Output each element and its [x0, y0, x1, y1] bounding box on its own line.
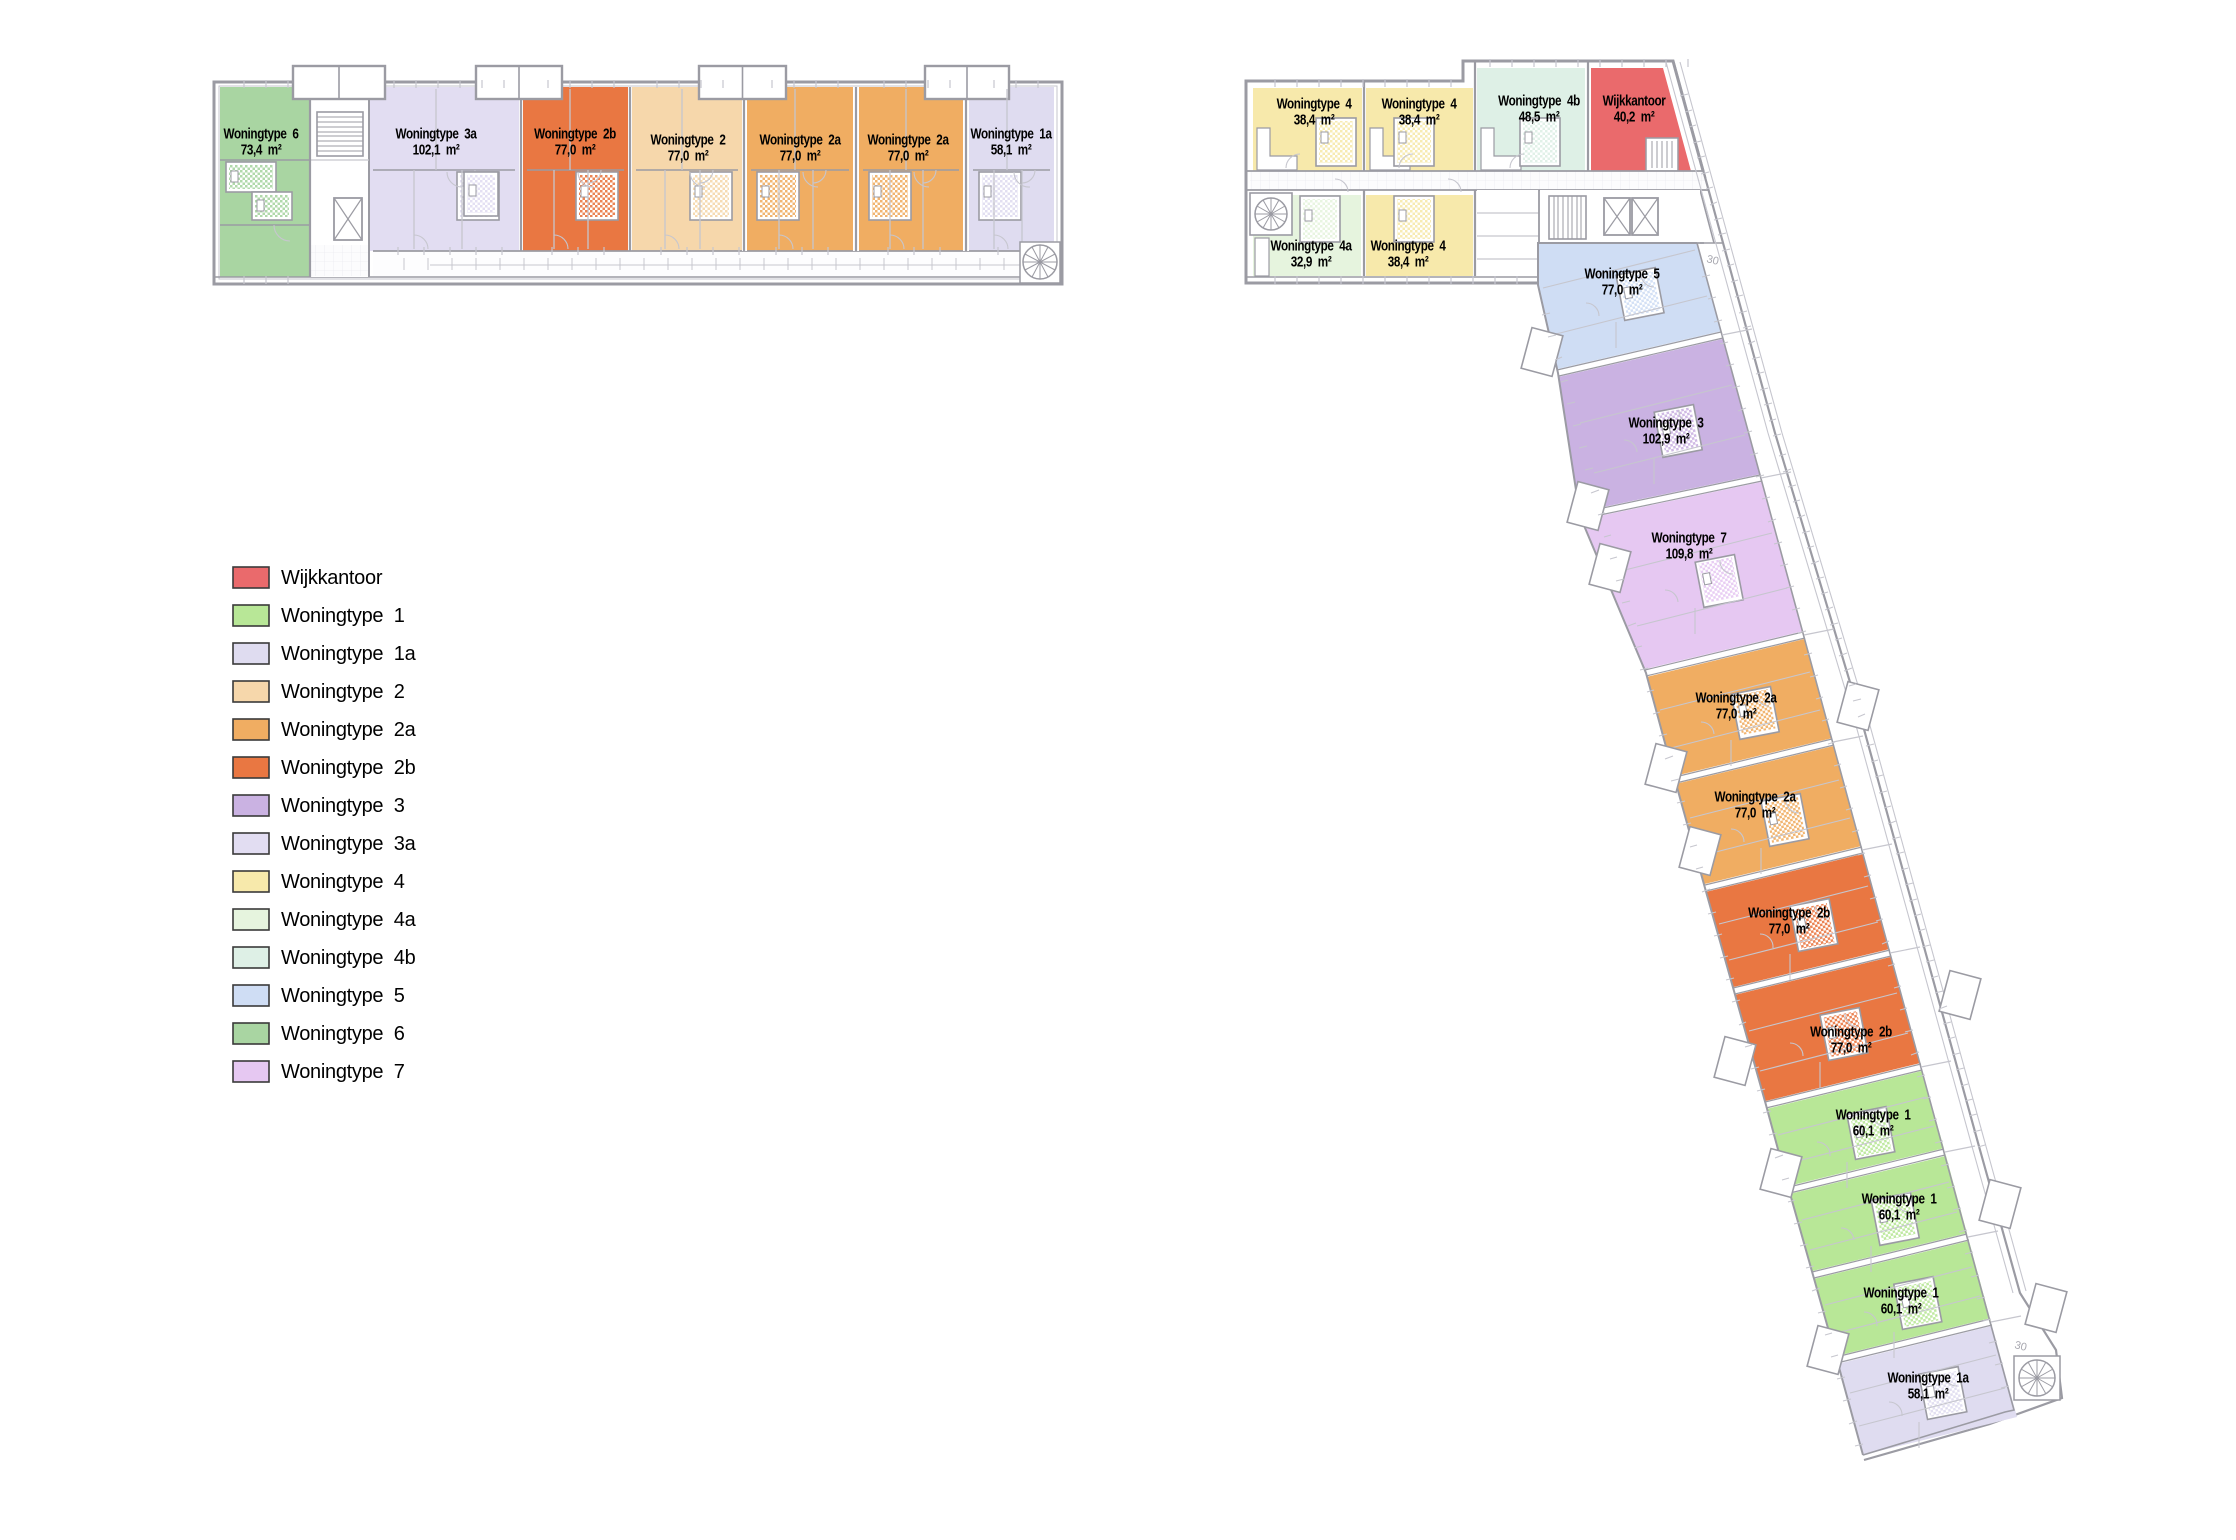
- svg-text:102,9 m²: 102,9 m²: [1643, 430, 1691, 447]
- svg-text:32,9 m²: 32,9 m²: [1291, 253, 1332, 270]
- svg-text:Woningtype 2a: Woningtype 2a: [1714, 788, 1796, 805]
- svg-text:Woningtype 2a: Woningtype 2a: [281, 719, 417, 741]
- svg-text:Woningtype 7: Woningtype 7: [281, 1061, 405, 1083]
- svg-text:Woningtype 4a: Woningtype 4a: [1270, 237, 1352, 254]
- svg-text:Woningtype 4: Woningtype 4: [281, 871, 405, 893]
- svg-text:77,0 m²: 77,0 m²: [555, 141, 596, 158]
- svg-text:77,0 m²: 77,0 m²: [888, 147, 929, 164]
- svg-text:Woningtype 2: Woningtype 2: [281, 681, 405, 703]
- svg-text:Woningtype 2b: Woningtype 2b: [1748, 904, 1830, 921]
- svg-text:77,0 m²: 77,0 m²: [780, 147, 821, 164]
- svg-text:48,5 m²: 48,5 m²: [1519, 108, 1560, 125]
- svg-text:38,4 m²: 38,4 m²: [1294, 111, 1335, 128]
- svg-text:77,0 m²: 77,0 m²: [1602, 281, 1643, 298]
- svg-text:38,4 m²: 38,4 m²: [1388, 253, 1429, 270]
- svg-text:Woningtype 2b: Woningtype 2b: [1810, 1023, 1892, 1040]
- svg-text:Woningtype 2a: Woningtype 2a: [759, 131, 841, 148]
- svg-text:Woningtype 4b: Woningtype 4b: [1498, 92, 1580, 109]
- svg-text:102,1 m²: 102,1 m²: [413, 141, 461, 158]
- svg-text:77,0 m²: 77,0 m²: [1735, 804, 1776, 821]
- svg-text:77,0 m²: 77,0 m²: [1831, 1039, 1872, 1056]
- svg-text:Woningtype 4: Woningtype 4: [1382, 95, 1458, 112]
- svg-text:58,1 m²: 58,1 m²: [991, 141, 1032, 158]
- svg-text:Woningtype 1: Woningtype 1: [1836, 1106, 1912, 1123]
- svg-text:Wijkkantoor: Wijkkantoor: [281, 567, 383, 589]
- svg-text:38,4 m²: 38,4 m²: [1399, 111, 1440, 128]
- svg-text:60,1 m²: 60,1 m²: [1853, 1122, 1894, 1139]
- svg-text:109,8 m²: 109,8 m²: [1666, 545, 1714, 562]
- svg-text:Woningtype 2a: Woningtype 2a: [867, 131, 949, 148]
- svg-text:Woningtype 7: Woningtype 7: [1652, 529, 1727, 546]
- svg-text:Woningtype 3a: Woningtype 3a: [281, 833, 417, 855]
- svg-text:77,0 m²: 77,0 m²: [1769, 920, 1810, 937]
- svg-text:Wijkkantoor: Wijkkantoor: [1603, 92, 1667, 109]
- svg-text:Woningtype 4: Woningtype 4: [1277, 95, 1353, 112]
- svg-text:Woningtype 2b: Woningtype 2b: [281, 757, 416, 779]
- svg-text:Woningtype 6: Woningtype 6: [224, 125, 299, 142]
- svg-text:Woningtype 3a: Woningtype 3a: [395, 125, 477, 142]
- svg-text:Woningtype 3: Woningtype 3: [281, 795, 405, 817]
- svg-text:73,4 m²: 73,4 m²: [241, 141, 282, 158]
- svg-text:Woningtype 1: Woningtype 1: [1864, 1284, 1940, 1301]
- svg-text:Woningtype 4: Woningtype 4: [1371, 237, 1447, 254]
- svg-text:Woningtype 3: Woningtype 3: [1629, 414, 1704, 431]
- svg-text:Woningtype 1a: Woningtype 1a: [970, 125, 1052, 142]
- svg-text:Woningtype 2: Woningtype 2: [651, 131, 726, 148]
- svg-text:77,0 m²: 77,0 m²: [1716, 705, 1757, 722]
- svg-text:Woningtype 5: Woningtype 5: [281, 985, 405, 1007]
- svg-text:Woningtype 2a: Woningtype 2a: [1695, 689, 1777, 706]
- svg-text:Woningtype 1a: Woningtype 1a: [1887, 1369, 1969, 1386]
- svg-text:Woningtype 1a: Woningtype 1a: [281, 643, 417, 665]
- svg-text:Woningtype 1: Woningtype 1: [281, 605, 405, 627]
- svg-text:Woningtype 4a: Woningtype 4a: [281, 909, 417, 931]
- svg-text:60,1 m²: 60,1 m²: [1879, 1206, 1920, 1223]
- svg-text:Woningtype 1: Woningtype 1: [1862, 1190, 1938, 1207]
- svg-text:77,0 m²: 77,0 m²: [668, 147, 709, 164]
- svg-text:40,2 m²: 40,2 m²: [1614, 108, 1655, 125]
- svg-text:Woningtype 6: Woningtype 6: [281, 1023, 405, 1045]
- svg-text:58,1 m²: 58,1 m²: [1908, 1385, 1949, 1402]
- svg-text:60,1 m²: 60,1 m²: [1881, 1300, 1922, 1317]
- svg-text:Woningtype 2b: Woningtype 2b: [534, 125, 616, 142]
- svg-text:Woningtype 4b: Woningtype 4b: [281, 947, 416, 969]
- svg-text:Woningtype 5: Woningtype 5: [1585, 265, 1661, 282]
